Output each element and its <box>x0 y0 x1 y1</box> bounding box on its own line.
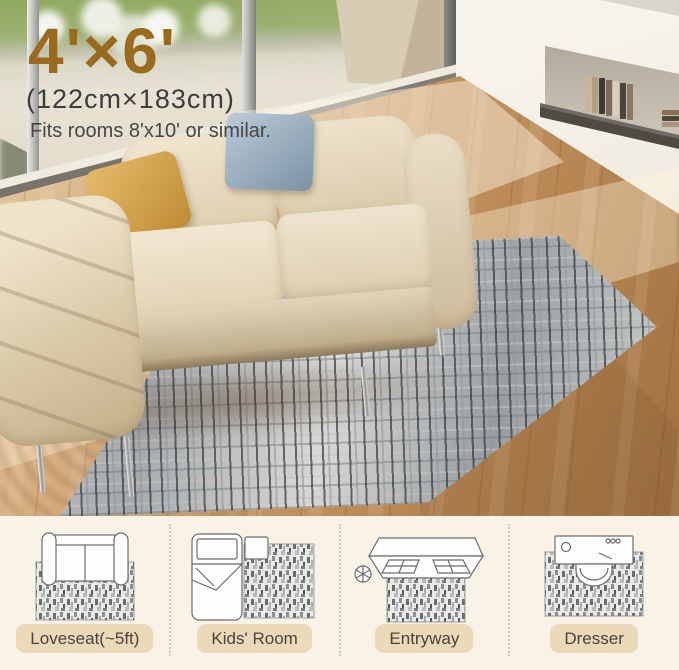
usage-panel-kids-room: Kids' Room <box>170 516 340 670</box>
usage-label: Kids' Room <box>197 624 311 653</box>
usage-panel-dresser: Dresser <box>509 516 679 670</box>
loveseat-top-view-icon <box>10 528 160 624</box>
usage-label: Dresser <box>550 624 638 653</box>
beige-loveseat-sofa <box>0 105 496 487</box>
dresser-stool-icon <box>519 528 669 624</box>
usage-suggestion-strip: Loveseat(~5ft) Kids' Room <box>0 516 679 670</box>
book <box>613 81 619 117</box>
usage-label: Entryway <box>375 624 473 653</box>
kids-room-bed-icon <box>180 528 330 624</box>
rug-size-cm-label: (122cm×183cm) <box>26 84 235 115</box>
usage-panel-entryway: Entryway <box>340 516 510 670</box>
book <box>592 77 598 113</box>
book <box>620 83 626 119</box>
product-image: 4'×6' (122cm×183cm) Fits rooms 8'x10' or… <box>0 0 679 670</box>
usage-label: Loveseat(~5ft) <box>16 624 153 653</box>
rug-size-feet-label: 4'×6' <box>28 14 177 88</box>
fits-room-note: Fits rooms 8'x10' or similar. <box>30 120 271 143</box>
usage-panel-loveseat: Loveseat(~5ft) <box>0 516 170 670</box>
book <box>606 80 612 116</box>
living-room-photo: 4'×6' (122cm×183cm) Fits rooms 8'x10' or… <box>0 0 679 516</box>
book <box>599 78 605 114</box>
book <box>585 76 591 112</box>
book-stack <box>662 110 679 132</box>
sofa-armrest <box>0 192 148 448</box>
entry-door-icon <box>349 528 499 624</box>
book <box>627 84 633 120</box>
